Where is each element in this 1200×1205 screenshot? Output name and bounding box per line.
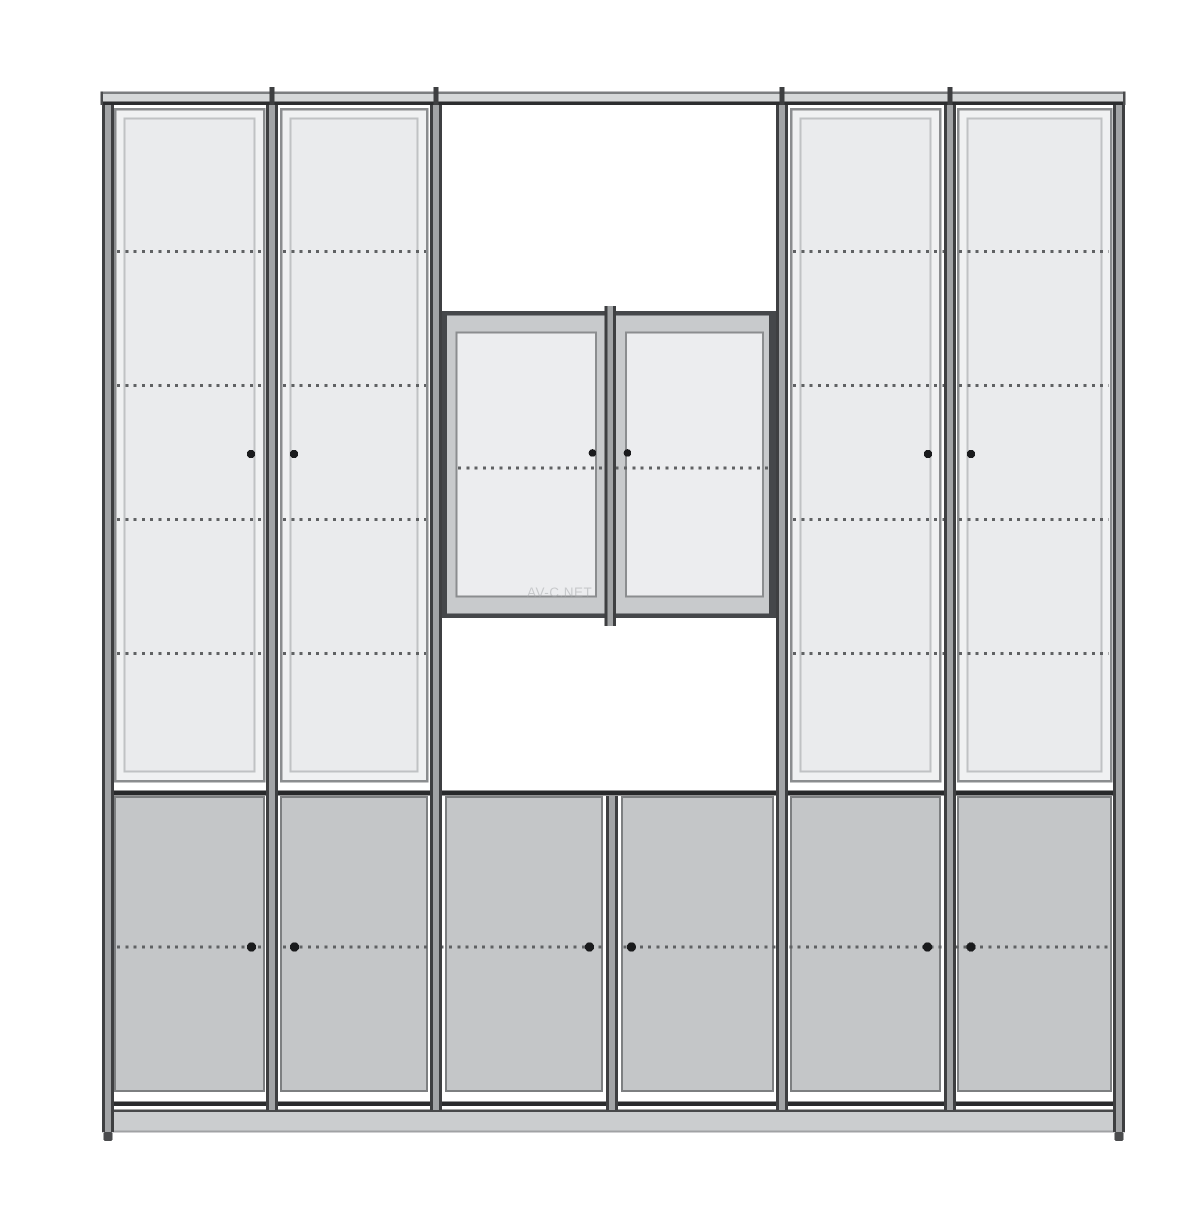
svg-text:AV-C.NET: AV-C.NET	[527, 585, 592, 600]
